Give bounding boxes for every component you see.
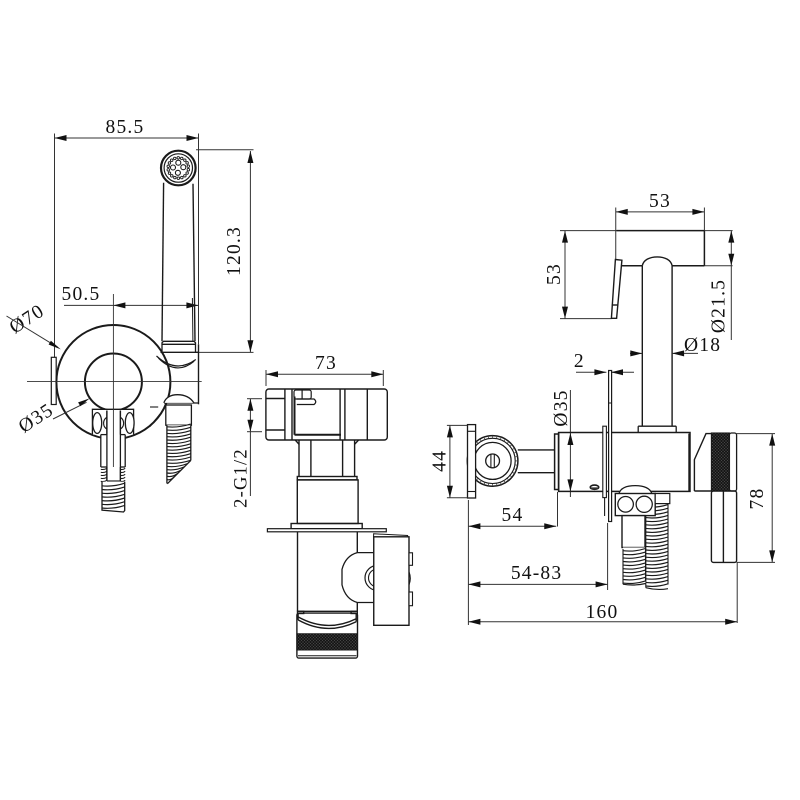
svg-text:54: 54 bbox=[502, 505, 524, 526]
svg-text:2: 2 bbox=[574, 351, 585, 372]
svg-text:120.3: 120.3 bbox=[224, 226, 245, 276]
svg-text:2-G1/2: 2-G1/2 bbox=[232, 448, 252, 508]
svg-text:160: 160 bbox=[586, 602, 619, 623]
svg-text:78: 78 bbox=[747, 488, 768, 510]
svg-text:Ø21.5: Ø21.5 bbox=[709, 279, 730, 333]
svg-text:53: 53 bbox=[649, 191, 671, 212]
svg-text:53: 53 bbox=[544, 263, 565, 285]
svg-text:50.5: 50.5 bbox=[62, 284, 101, 305]
svg-text:85.5: 85.5 bbox=[106, 117, 145, 138]
svg-text:44: 44 bbox=[429, 450, 450, 472]
svg-text:54-83: 54-83 bbox=[511, 563, 563, 584]
svg-text:73: 73 bbox=[315, 353, 337, 374]
svg-text:Ø35: Ø35 bbox=[551, 389, 572, 426]
svg-text:Ø35: Ø35 bbox=[15, 400, 58, 438]
svg-text:Ø18: Ø18 bbox=[684, 335, 721, 356]
